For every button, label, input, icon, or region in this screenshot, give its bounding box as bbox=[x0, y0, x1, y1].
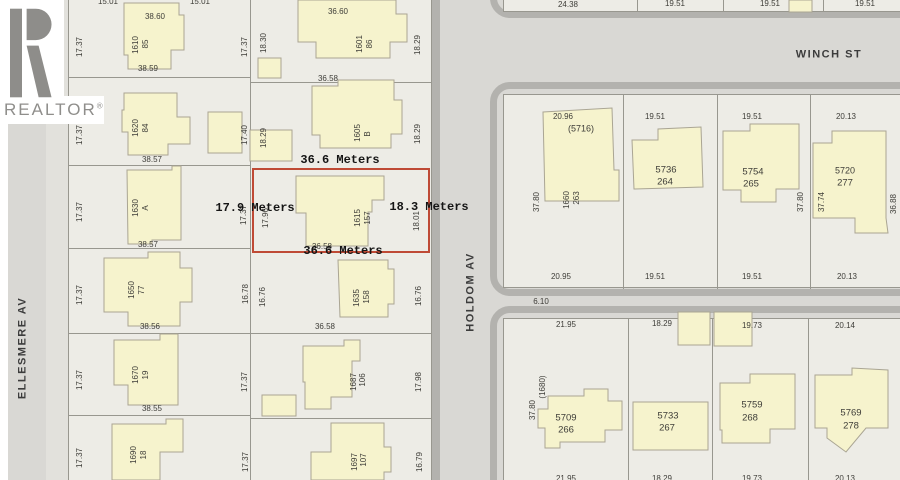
building-5716 bbox=[543, 108, 619, 201]
dimension-label: 36.60 bbox=[328, 8, 348, 16]
registered-mark: ® bbox=[97, 101, 103, 110]
dimension-label-vertical: 37.74 bbox=[818, 192, 826, 212]
dimension-label-vertical: 1690 bbox=[130, 446, 138, 464]
dimension-label: 20.13 bbox=[835, 475, 855, 480]
outbuilding-1605 bbox=[250, 130, 292, 161]
dimension-label: 5754 bbox=[742, 167, 763, 177]
dimension-label-vertical: 17.98 bbox=[415, 372, 423, 392]
dimension-label: 277 bbox=[837, 178, 853, 188]
dimension-label-vertical: 18.29 bbox=[414, 124, 422, 144]
dimension-label-vertical: 107 bbox=[360, 453, 368, 466]
dimension-label: 19.51 bbox=[760, 0, 780, 8]
dimension-label-vertical: 17.37 bbox=[76, 37, 84, 57]
dimension-label-vertical: 84 bbox=[142, 124, 150, 133]
dimension-label-vertical: 18.29 bbox=[414, 35, 422, 55]
realtor-wordmark: REALTOR® bbox=[4, 100, 103, 120]
dimension-label-vertical: 18 bbox=[140, 451, 148, 460]
dimension-label-vertical: 18.29 bbox=[260, 128, 268, 148]
dimension-label: 18.29 bbox=[652, 475, 672, 480]
building-5709 bbox=[538, 389, 622, 448]
dimension-label: 264 bbox=[657, 177, 673, 187]
dimension-label: 278 bbox=[843, 421, 859, 431]
dimension-label: 5769 bbox=[840, 408, 861, 418]
street-label-holdom: HOLDOM AV bbox=[466, 252, 477, 332]
dimension-label: 24.38 bbox=[558, 1, 578, 9]
dimension-label: (5716) bbox=[568, 125, 594, 134]
dimension-label: 38.55 bbox=[142, 405, 162, 413]
building-1635 bbox=[338, 260, 394, 317]
realtor-r-icon bbox=[10, 8, 58, 98]
dimension-label-vertical: 17.37 bbox=[76, 285, 84, 305]
dimension-label-vertical: 1610 bbox=[132, 36, 140, 54]
dimension-label-vertical: 17.37 bbox=[241, 37, 249, 57]
dimension-label: 19.73 bbox=[742, 475, 762, 480]
dimension-label-vertical: 36.88 bbox=[890, 194, 898, 214]
dimension-label: 5733 bbox=[657, 411, 678, 421]
highlight-dimension-label: 36.6 Meters bbox=[300, 154, 379, 166]
dimension-label-vertical: 158 bbox=[363, 290, 371, 303]
outbuilding-1620 bbox=[208, 112, 242, 153]
dimension-label: 265 bbox=[743, 179, 759, 189]
dimension-label: 20.95 bbox=[551, 273, 571, 281]
dimension-label: 19.51 bbox=[742, 113, 762, 121]
highlight-dimension-label: 18.3 Meters bbox=[389, 201, 468, 213]
dimension-label: 21.95 bbox=[556, 321, 576, 329]
outbuilding-winch bbox=[789, 0, 812, 12]
building-1601 bbox=[298, 0, 407, 58]
dimension-label: 268 bbox=[742, 413, 758, 423]
dimension-label-vertical: 37.80 bbox=[797, 192, 805, 212]
dimension-label-vertical: 18.30 bbox=[260, 33, 268, 53]
building-1697 bbox=[311, 423, 391, 480]
dimension-label: 266 bbox=[558, 425, 574, 435]
dimension-label: 19.51 bbox=[742, 273, 762, 281]
dimension-label: 20.13 bbox=[837, 273, 857, 281]
dimension-label-vertical: 1660 bbox=[563, 191, 571, 209]
dimension-label-vertical: 85 bbox=[142, 40, 150, 49]
dimension-label-vertical: 17.37 bbox=[76, 448, 84, 468]
street-label-ellesmere: ELLESMERE AV bbox=[18, 297, 29, 399]
dimension-label-vertical: 17.37 bbox=[76, 202, 84, 222]
dimension-label: 267 bbox=[659, 423, 675, 433]
dimension-label: 15.01 bbox=[190, 0, 210, 6]
dimension-label-vertical: 1620 bbox=[132, 119, 140, 137]
dimension-label: 18.29 bbox=[652, 320, 672, 328]
dimension-label-vertical: 1601 bbox=[356, 35, 364, 53]
dimension-label-vertical: 1697 bbox=[351, 453, 359, 471]
dimension-label: 5759 bbox=[741, 400, 762, 410]
dimension-label: 38.59 bbox=[138, 65, 158, 73]
dimension-label-vertical: 1630 bbox=[132, 199, 140, 217]
dimension-label: 38.57 bbox=[142, 156, 162, 164]
highlight-dimension-label: 17.9 Meters bbox=[215, 202, 294, 214]
cadastral-map: 15.0115.0138.6036.6038.5936.5838.5738.57… bbox=[0, 0, 900, 480]
dimension-label: 15.01 bbox=[98, 0, 118, 6]
dimension-label-vertical: 19 bbox=[142, 371, 150, 380]
dimension-label-vertical: 17.37 bbox=[241, 372, 249, 392]
dimension-label-vertical: 263 bbox=[573, 191, 581, 204]
outbuilding-1687 bbox=[262, 395, 296, 416]
dimension-label-vertical: 1615 bbox=[354, 209, 362, 227]
dimension-label: 36.58 bbox=[318, 75, 338, 83]
dimension-label-vertical: 77 bbox=[138, 286, 146, 295]
dimension-label-vertical: 16.76 bbox=[415, 286, 423, 306]
dimension-label-vertical: 157 bbox=[364, 211, 372, 224]
street-label-winch: WINCH ST bbox=[796, 50, 862, 61]
realtor-brand-text: REALTOR bbox=[4, 100, 97, 119]
outbuilding-5733 bbox=[678, 312, 710, 345]
dimension-label: 20.14 bbox=[835, 322, 855, 330]
dimension-label: 38.57 bbox=[138, 241, 158, 249]
dimension-label: 19.73 bbox=[742, 322, 762, 330]
dimension-label-vertical: 37.80 bbox=[529, 400, 537, 420]
dimension-label: 19.51 bbox=[645, 273, 665, 281]
dimension-label-vertical: 16.79 bbox=[416, 452, 424, 472]
dimension-label-vertical: 17.37 bbox=[76, 370, 84, 390]
dimension-label-vertical: 1670 bbox=[132, 366, 140, 384]
dimension-label: 5720 bbox=[835, 167, 855, 176]
dimension-label-vertical: 16.76 bbox=[259, 287, 267, 307]
dimension-label-vertical: 17.37 bbox=[76, 125, 84, 145]
building-footprints bbox=[0, 0, 900, 480]
building-1650 bbox=[104, 252, 192, 326]
dimension-label: 5709 bbox=[555, 413, 576, 423]
dimension-label-vertical: 17.37 bbox=[242, 452, 250, 472]
dimension-label-vertical: 16.78 bbox=[242, 284, 250, 304]
building-5754 bbox=[723, 124, 799, 202]
dimension-label: 38.56 bbox=[140, 323, 160, 331]
dimension-label-vertical: 37.80 bbox=[533, 192, 541, 212]
dimension-label-vertical: 1605 bbox=[354, 124, 362, 142]
dimension-label-vertical: 17.40 bbox=[241, 125, 249, 145]
dimension-label: 21.95 bbox=[556, 475, 576, 480]
dimension-label: 20.96 bbox=[553, 113, 573, 121]
dimension-label-vertical: 1687 bbox=[350, 373, 358, 391]
dimension-label: 5736 bbox=[655, 165, 676, 175]
dimension-label: 19.51 bbox=[855, 0, 875, 8]
dimension-label-vertical: (1680) bbox=[539, 375, 547, 398]
dimension-label-vertical: 86 bbox=[366, 40, 374, 49]
dimension-label: 38.60 bbox=[145, 13, 165, 21]
dimension-label-vertical: 1650 bbox=[128, 281, 136, 299]
dimension-label: 6.10 bbox=[533, 298, 549, 306]
dimension-label-vertical: A bbox=[142, 205, 150, 210]
dimension-label-vertical: 106 bbox=[359, 373, 367, 386]
highlight-dimension-label: 36.6 Meters bbox=[303, 245, 382, 257]
outbuilding-1601 bbox=[258, 58, 281, 78]
dimension-label-vertical: B bbox=[364, 131, 372, 136]
dimension-label: 19.51 bbox=[665, 0, 685, 8]
dimension-label-vertical: 1635 bbox=[353, 289, 361, 307]
dimension-label: 19.51 bbox=[645, 113, 665, 121]
dimension-label: 20.13 bbox=[836, 113, 856, 121]
dimension-label: 36.58 bbox=[315, 323, 335, 331]
